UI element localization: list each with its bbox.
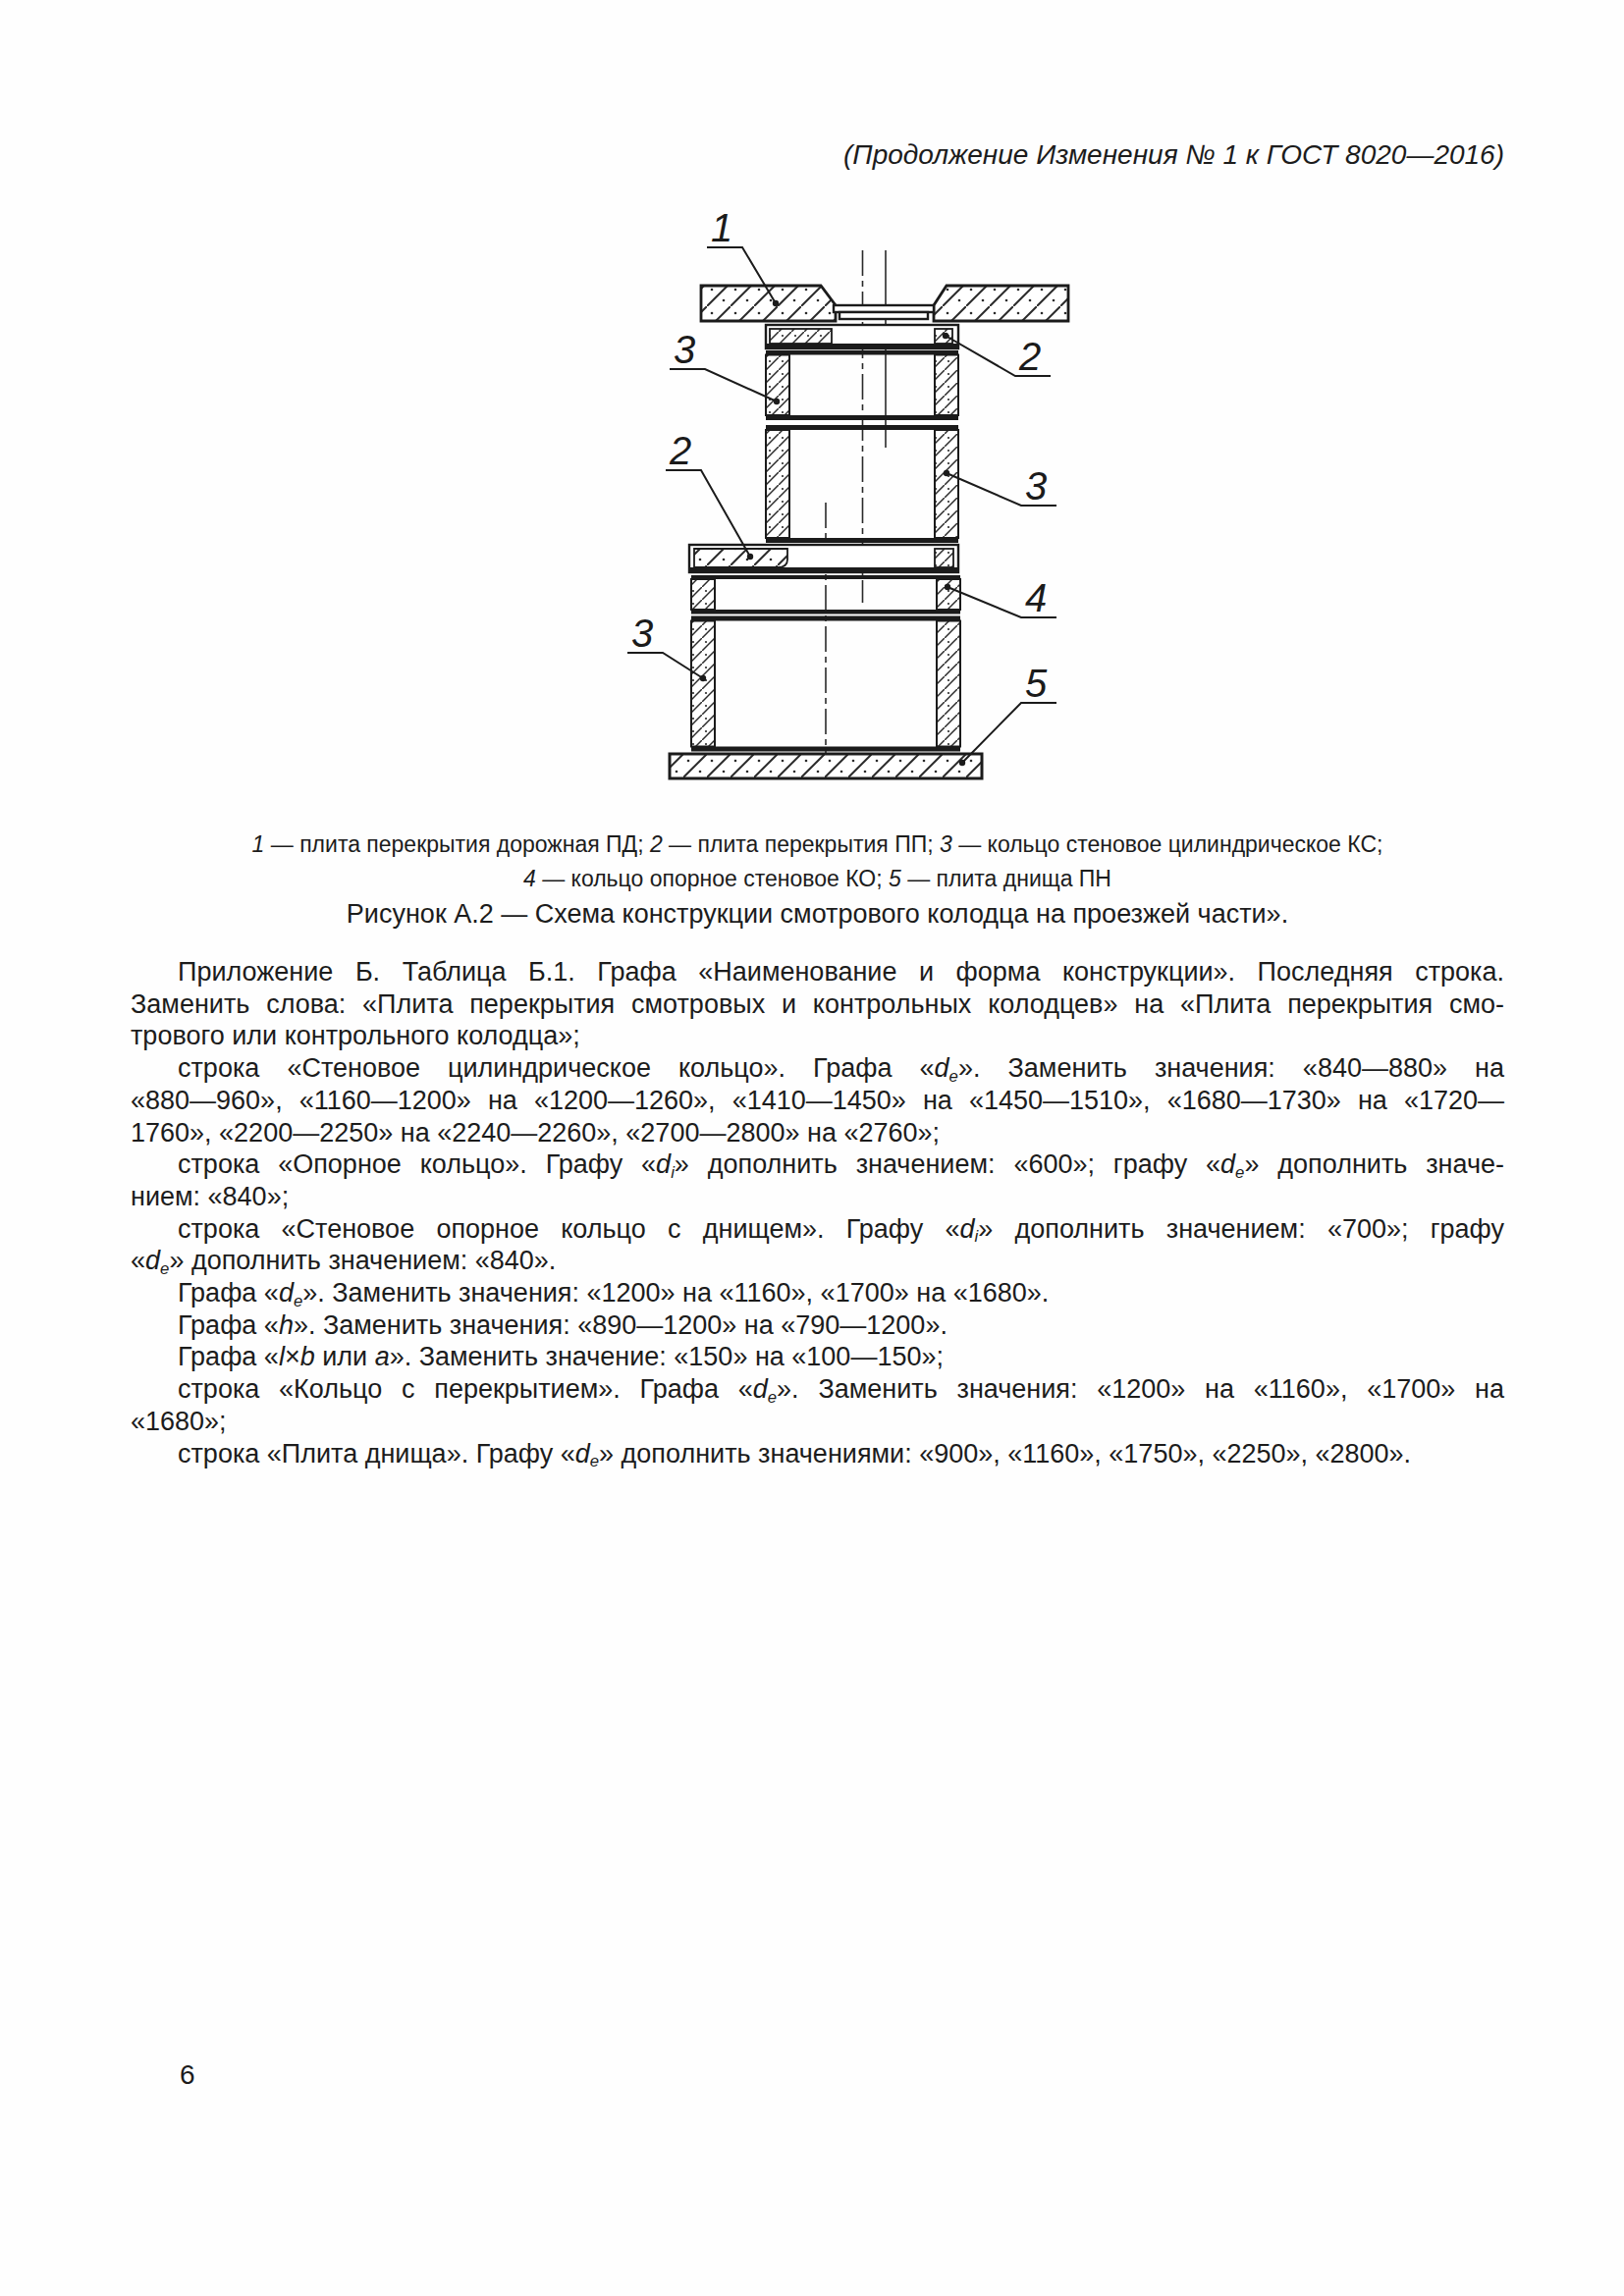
running-header: (Продолжение Изменения № 1 к ГОСТ 8020—2…: [131, 139, 1504, 171]
text-line: Графа «de». Заменить значения: «1200» на…: [131, 1277, 1504, 1309]
bottom-slab-pn: [670, 754, 982, 778]
amendment-body-text: Приложение Б. Таблица Б.1. Графа «Наимен…: [131, 956, 1504, 1469]
figure-title: Рисунок А.2 — Схема конструкции смотрово…: [131, 899, 1504, 930]
text-line: Графа «h». Заменить значения: «890—1200»…: [131, 1309, 1504, 1342]
callout-5: 5: [959, 662, 1056, 766]
road-slab-pd: [701, 286, 1068, 321]
text-line: «de» дополнить значением: «840».: [131, 1245, 1504, 1277]
callout-3-right: 3: [944, 464, 1056, 507]
text-line: нием: «840»;: [131, 1181, 1504, 1213]
text-line: трового или контрольного колодца»;: [131, 1020, 1504, 1052]
text-line: 1760», «2200—2250» на «2240—2260», «2700…: [131, 1117, 1504, 1149]
callout-3-right-label: 3: [1025, 464, 1047, 507]
text-line: Заменить слова: «Плита перекрытия смотро…: [131, 988, 1504, 1021]
manhole-hatch-lower-plate: [839, 312, 928, 319]
wall-ring-ks-2: [766, 425, 958, 543]
text-line: Приложение Б. Таблица Б.1. Графа «Наимен…: [131, 956, 1504, 988]
callout-3-upper: 3: [670, 328, 780, 404]
callout-2-right-label: 2: [1018, 335, 1041, 378]
callout-3-upper-label: 3: [674, 328, 695, 371]
figure-legend-line: 1 — плита перекрытия дорожная ПД; 2 — пл…: [131, 828, 1504, 862]
text-line: «880—960», «1160—1200» на «1200—1260», «…: [131, 1085, 1504, 1117]
callout-2-left: 2: [666, 429, 753, 560]
callout-3-lower-label: 3: [631, 612, 653, 655]
callout-1-label: 1: [711, 206, 732, 249]
text-line: строка «Стеновое цилиндрическое кольцо».…: [131, 1052, 1504, 1085]
figure-a2-diagram: 1 3 2 2 3 4 3 5: [609, 201, 1080, 790]
callout-5-label: 5: [1025, 662, 1048, 705]
callout-4-label: 4: [1025, 576, 1047, 619]
figure-legend: 1 — плита перекрытия дорожная ПД; 2 — пл…: [131, 828, 1504, 896]
text-line: строка «Опорное кольцо». Графу «di» допо…: [131, 1148, 1504, 1181]
page-number: 6: [180, 2059, 195, 2091]
text-line: строка «Кольцо с перекрытием». Графа «de…: [131, 1373, 1504, 1406]
callout-2-left-label: 2: [669, 429, 691, 472]
text-line: строка «Плита днища». Графу «de» дополни…: [131, 1438, 1504, 1470]
cover-slab-pp-lower: [689, 545, 958, 572]
text-line: строка «Стеновое опорное кольцо с днищем…: [131, 1213, 1504, 1246]
text-line: Графа «l×b или a». Заменить значение: «1…: [131, 1341, 1504, 1373]
figure-legend-line: 4 — кольцо опорное стеновое КО; 5 — плит…: [131, 862, 1504, 896]
text-line: «1680»;: [131, 1406, 1504, 1438]
cover-slab-pp-upper: [766, 325, 958, 348]
